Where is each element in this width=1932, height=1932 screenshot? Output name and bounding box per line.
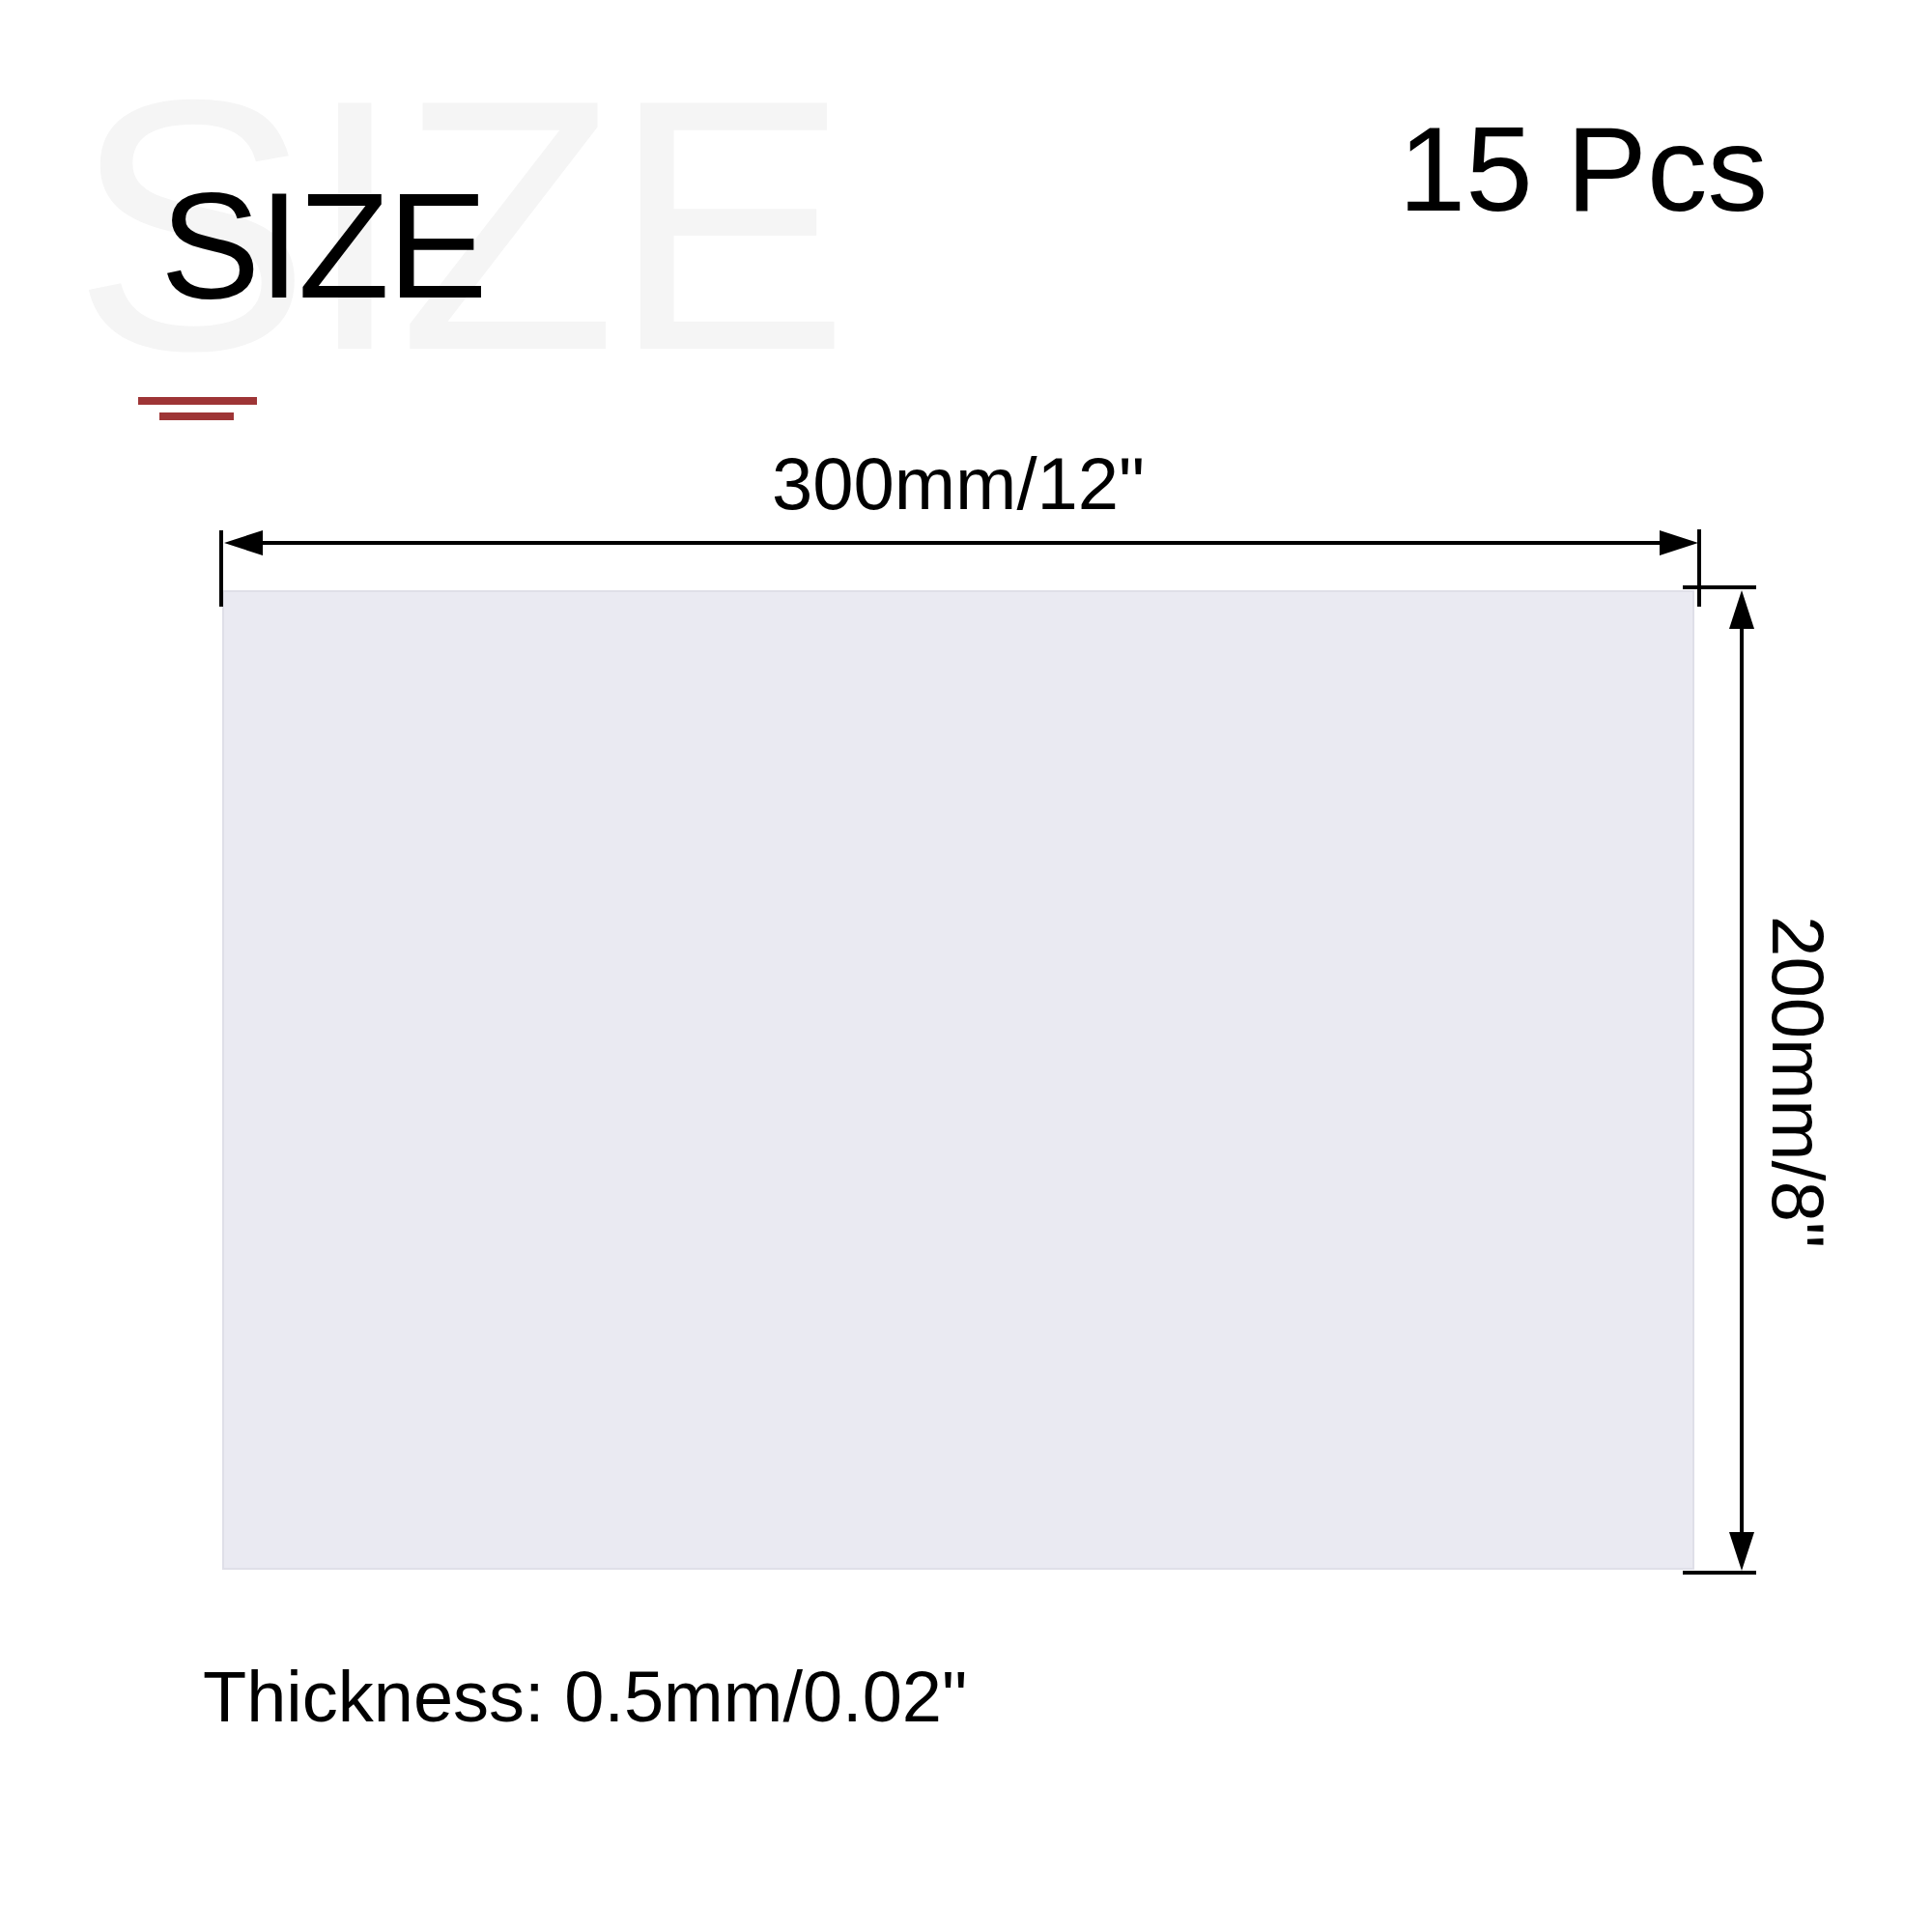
width-arrow-left-icon xyxy=(224,530,263,555)
width-arrow-right-icon xyxy=(1660,530,1698,555)
height-arrow-down-icon xyxy=(1729,1532,1754,1571)
page-title: SIZE xyxy=(160,171,486,321)
height-dimension-line xyxy=(1740,597,1744,1565)
thickness-label: Thickness: 0.5mm/0.02" xyxy=(203,1658,967,1736)
product-sheet-panel xyxy=(222,590,1694,1570)
height-dimension-label: 200mm/8" xyxy=(1759,889,1836,1275)
red-underline-bottom xyxy=(159,412,234,420)
size-diagram-page: SIZE SIZE 15 Pcs 300mm/12" 200mm/8" Thic… xyxy=(0,0,1932,1932)
width-dimension-line xyxy=(232,541,1662,545)
width-dimension-label: 300mm/12" xyxy=(222,447,1694,521)
height-extension-line-bottom xyxy=(1683,1571,1756,1575)
width-extension-line-left xyxy=(219,530,223,607)
height-extension-line-top xyxy=(1683,585,1756,589)
piece-count-label: 15 Pcs xyxy=(1399,99,1768,239)
red-underline-top xyxy=(138,397,257,405)
height-arrow-up-icon xyxy=(1729,590,1754,629)
